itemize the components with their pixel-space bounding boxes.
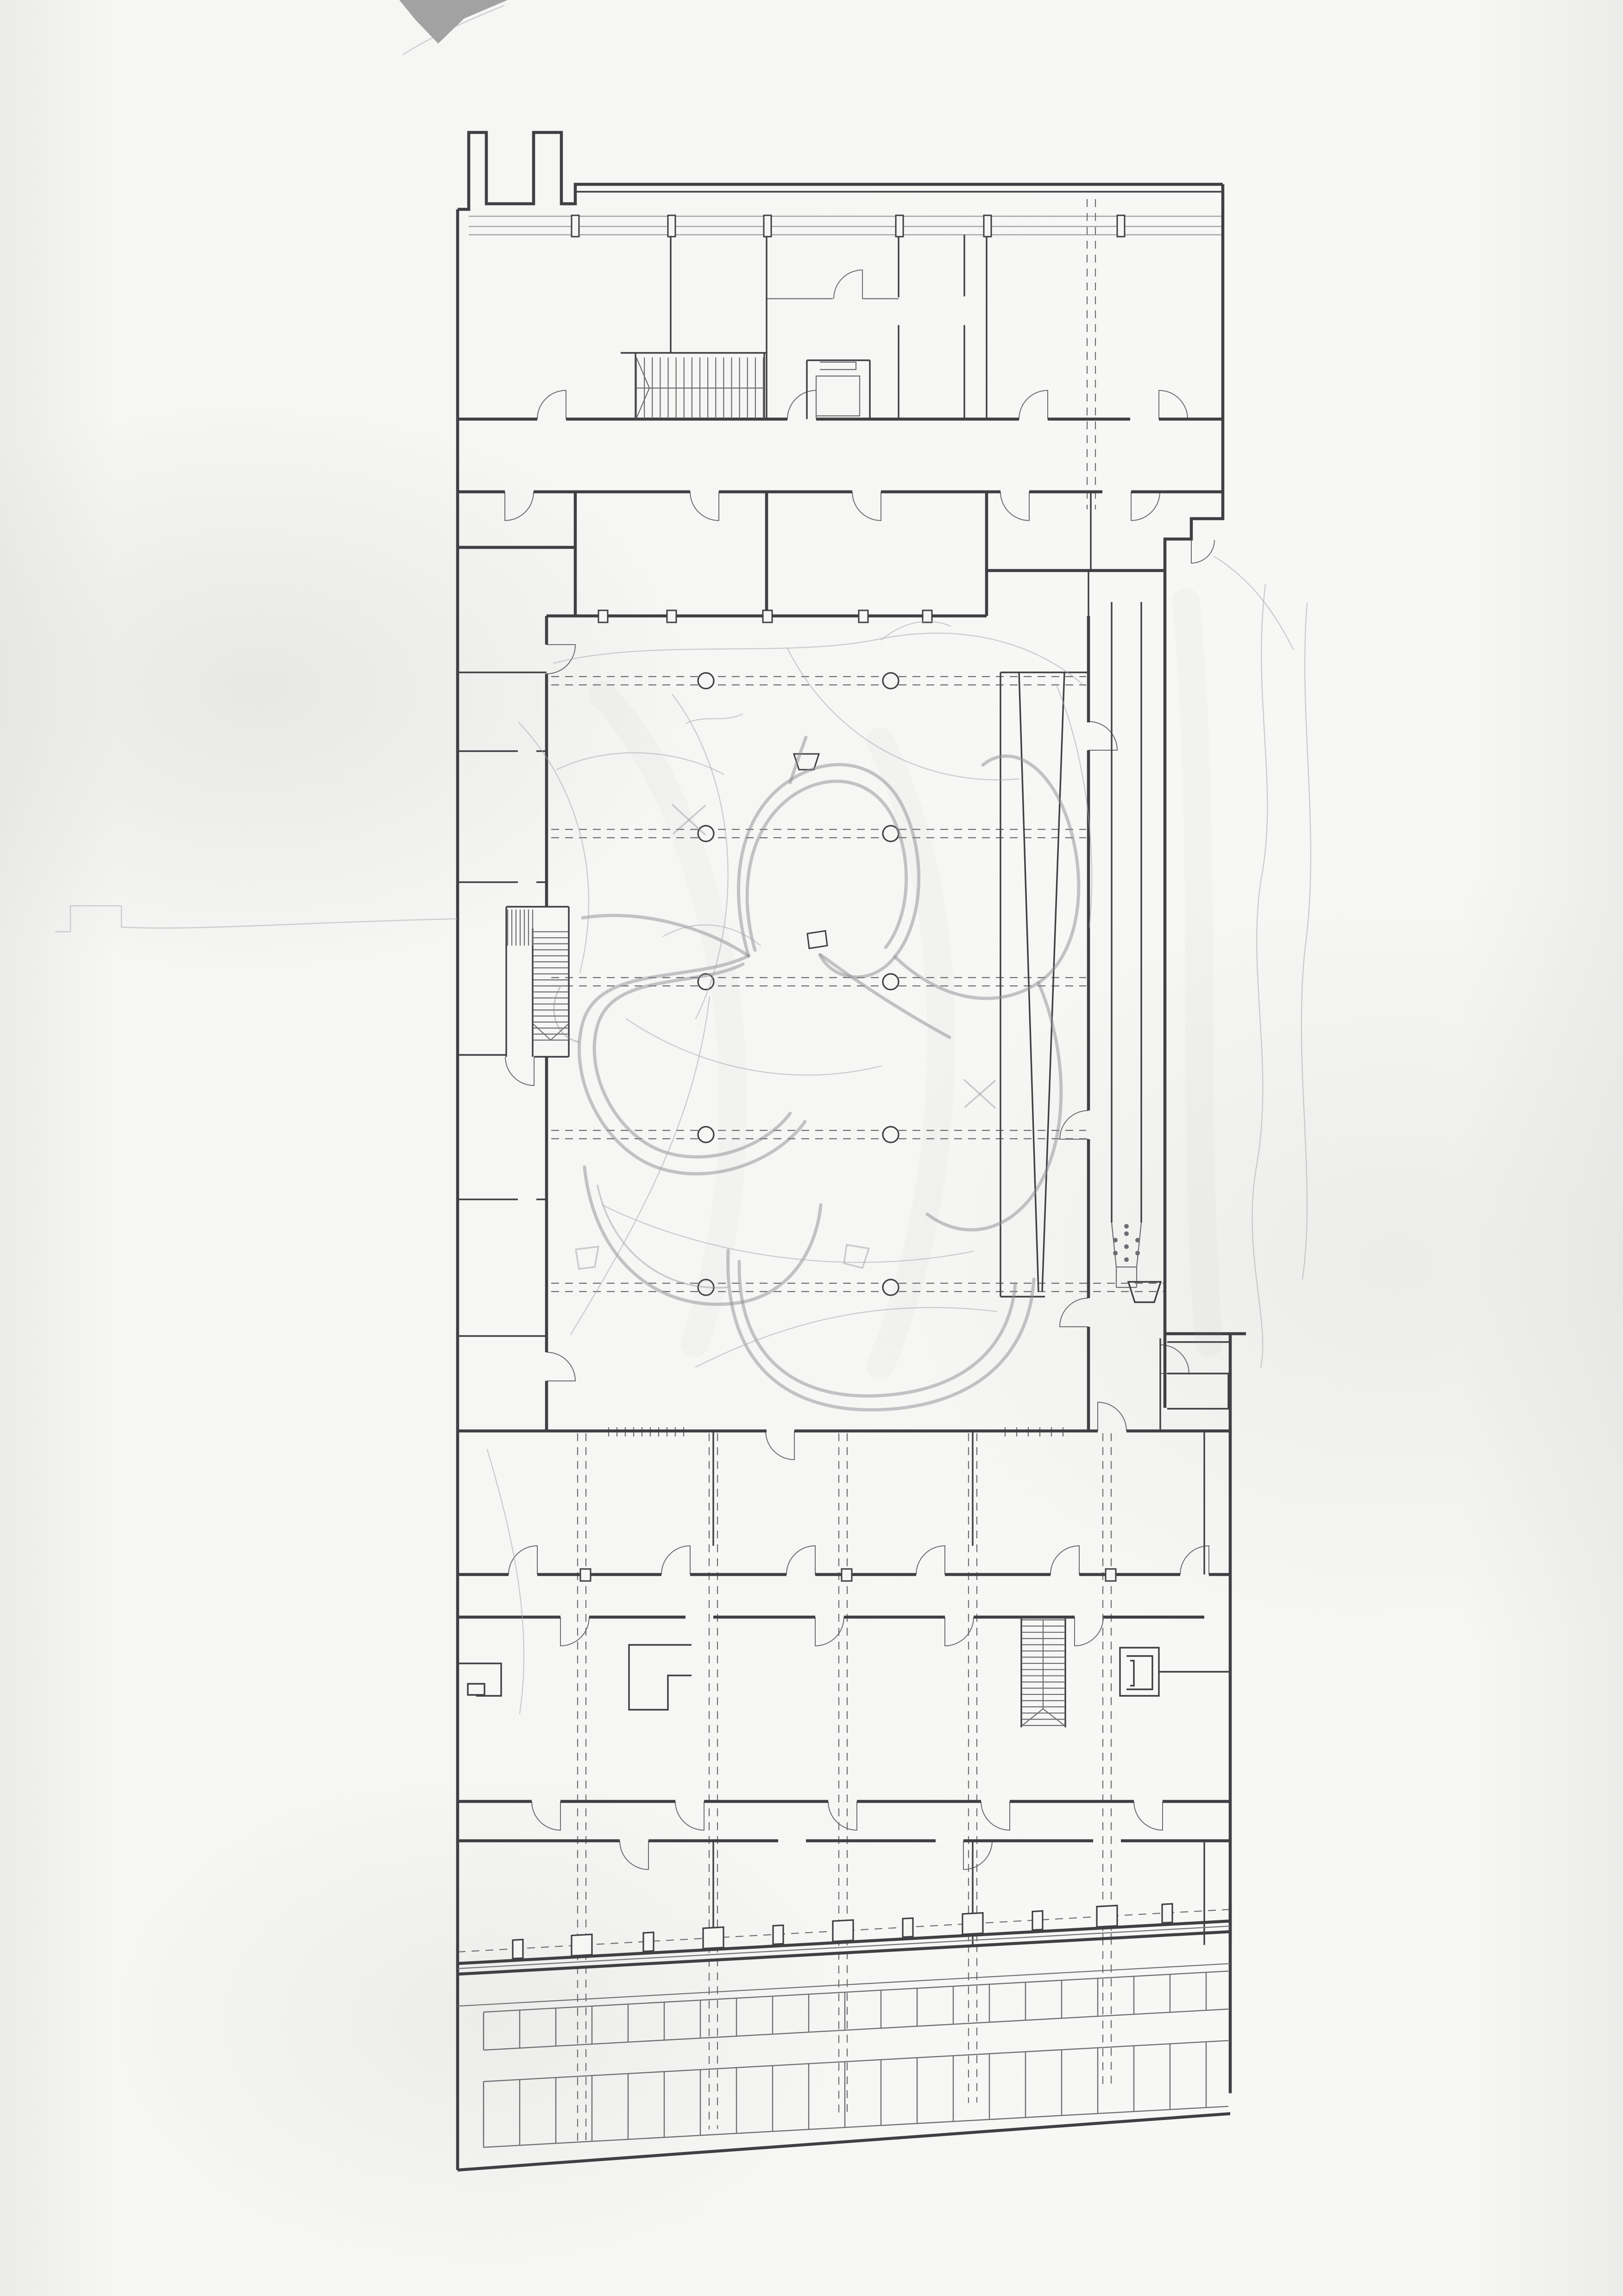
perforation-dots	[1113, 1224, 1140, 1262]
scan-corner-shadow	[399, 0, 508, 44]
pencil-wash	[602, 602, 1209, 1366]
door-arcs	[505, 270, 1214, 1869]
walls-medium	[458, 192, 1230, 1945]
stair-treads	[508, 358, 1064, 1725]
yard-walls-light	[458, 1926, 1230, 2149]
walls-heavy	[458, 132, 1246, 2170]
scanned-sheet	[0, 0, 1623, 2296]
column-grid-dashed	[551, 199, 1165, 1945]
window-band-lines	[469, 216, 1223, 235]
floor-plan-canvas	[0, 0, 1623, 2296]
